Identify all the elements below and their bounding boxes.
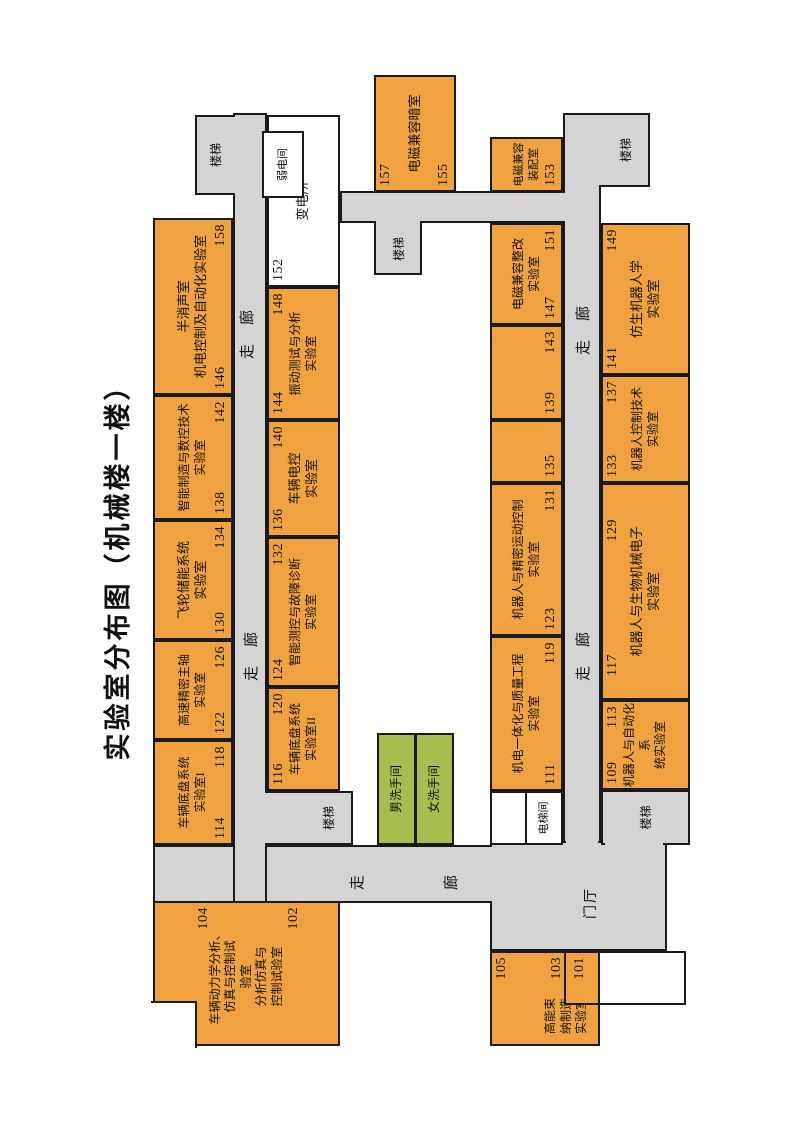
mens-toilet: 男洗手间 bbox=[377, 733, 416, 845]
room-135: 135 bbox=[490, 420, 563, 483]
stairs-northeast: 楼梯 bbox=[195, 115, 235, 195]
room-number: 103 bbox=[549, 957, 565, 980]
room-number: 143 bbox=[543, 331, 559, 354]
room-number: 140 bbox=[271, 426, 287, 449]
elevator-room: 电梯间 bbox=[525, 791, 563, 845]
room-number: 152 bbox=[271, 259, 287, 282]
room-number: 131 bbox=[543, 489, 559, 512]
room-number: 142 bbox=[213, 401, 229, 424]
room-emc-anechoic: 电磁兼容暗室 157 155 bbox=[374, 75, 456, 192]
bottom-corridor bbox=[563, 113, 601, 845]
stairs-south-lobby: 楼梯 bbox=[601, 790, 690, 845]
corridor-junction bbox=[376, 219, 420, 227]
room-number: 132 bbox=[271, 543, 287, 566]
stairs-junction-northwest: 楼梯 bbox=[267, 791, 353, 845]
room-number: 117 bbox=[605, 654, 621, 676]
room-number: 113 bbox=[605, 706, 621, 728]
room-high-speed-spindle: 高速精密主轴 实验室 122 126 bbox=[153, 640, 233, 740]
room-number: 101 bbox=[572, 957, 588, 980]
womens-toilet: 女洗手间 bbox=[415, 733, 454, 845]
stairs-label: 楼梯 bbox=[320, 806, 337, 830]
stairs-southeast: 楼梯 bbox=[601, 113, 650, 187]
room-number: 105 bbox=[494, 957, 510, 980]
room-number: 111 bbox=[543, 764, 559, 785]
room-number: 147 bbox=[543, 297, 559, 320]
room-number: 148 bbox=[271, 293, 287, 316]
room-number: 141 bbox=[605, 347, 621, 370]
room-number: 144 bbox=[271, 392, 287, 415]
room-number: 122 bbox=[213, 712, 229, 735]
room-number: 135 bbox=[543, 455, 559, 478]
room-number: 102 bbox=[286, 907, 302, 930]
room-number: 149 bbox=[605, 229, 621, 252]
room-vibration-testing: 振动测试与分析 实验室 144 148 bbox=[267, 287, 340, 420]
room-number: 120 bbox=[271, 693, 287, 716]
room-intelligent-testing: 智能测控与故障诊断 实验室 124 132 bbox=[267, 537, 340, 687]
room-robot-biomechatronics: 机器人与生物机械电子 实验室 117 129 bbox=[601, 483, 690, 700]
room-robot-automation-systems: 机器人与自动化系 统实验室 109 113 bbox=[601, 700, 690, 790]
room-number: 151 bbox=[543, 229, 559, 252]
stairs-label: 楼梯 bbox=[637, 806, 654, 830]
page-title: 实验室分布图（机械楼一楼） bbox=[96, 0, 135, 1131]
room-number: 124 bbox=[271, 659, 287, 682]
room-number: 119 bbox=[543, 642, 559, 664]
lobby-label: 门厅 bbox=[580, 887, 600, 919]
room-chassis-lab2: 车辆底盘系统 实验室II 116 120 bbox=[267, 687, 340, 791]
corridor-junction bbox=[560, 193, 570, 221]
top-corridor bbox=[233, 113, 267, 903]
room-number: 158 bbox=[213, 224, 229, 247]
room-number: 130 bbox=[213, 612, 229, 635]
room-flywheel-energy: 飞轮储能系统 实验室 130 134 bbox=[153, 520, 233, 640]
room-number: 133 bbox=[605, 455, 621, 478]
room-vehicle-electronic-control: 车辆电控 实验室 136 140 bbox=[267, 420, 340, 537]
room-intelligent-manufacturing: 智能制造与数控技术 实验室 138 142 bbox=[153, 395, 233, 520]
right-corridor bbox=[340, 191, 565, 223]
room-number: 114 bbox=[213, 817, 229, 839]
corridor-label: 走 廊 bbox=[236, 308, 257, 359]
corridor-junction bbox=[235, 847, 265, 901]
corridor-label: 走 廊 bbox=[572, 304, 593, 355]
exterior-structure bbox=[598, 951, 686, 1005]
corridor-junction bbox=[487, 847, 495, 901]
room-robot-precision-motion: 机器人与精密运动控制 实验室 123 131 bbox=[490, 483, 563, 636]
room-number: 118 bbox=[213, 746, 229, 768]
corridor-junction bbox=[597, 115, 605, 185]
stairs-east-alcove: 楼梯 bbox=[374, 223, 422, 275]
corridor-junction bbox=[231, 117, 237, 193]
room-bionic-robotics: 仿生机器人学 实验室 141 149 bbox=[601, 223, 690, 375]
stairs-label: 楼梯 bbox=[617, 138, 634, 162]
corridor-junction bbox=[263, 793, 271, 843]
room-mechatronics-quality: 机电一体化与质量工程 实验室 111 119 bbox=[490, 636, 563, 791]
room-number: 138 bbox=[213, 492, 229, 515]
room-number: 104 bbox=[196, 907, 212, 930]
room-emc-assembly: 电磁兼容 装配室 153 bbox=[490, 137, 563, 192]
room-semi-anechoic: 半消声室 机电控制及自动化实验室 146 158 bbox=[153, 218, 233, 395]
room-robot-control-tech: 机器人控制技术 实验室 133 137 bbox=[601, 375, 690, 483]
room-number: 153 bbox=[543, 164, 559, 187]
room-139-143: 139 143 bbox=[490, 325, 563, 420]
corridor-label: 走 廊 bbox=[572, 630, 593, 681]
room-number: 146 bbox=[213, 367, 229, 390]
corridor-label-vertical: 廊 bbox=[440, 873, 461, 890]
room-number: 123 bbox=[543, 608, 559, 631]
room-number: 139 bbox=[543, 392, 559, 415]
room-number: 126 bbox=[213, 646, 229, 669]
room-weak-current: 弱电间 bbox=[262, 131, 304, 198]
corridor-junction bbox=[605, 838, 663, 848]
room-chassis-lab1: 车辆底盘系统 实验室I 114 118 bbox=[153, 740, 233, 845]
floorplan-page: 实验室分布图（机械楼一楼） 楼梯 楼梯 楼梯 楼梯 楼梯 走 廊 走 廊 走 廊… bbox=[0, 0, 800, 1131]
room-emc-rectification: 电磁兼容整改 实验室 147 151 bbox=[490, 223, 563, 325]
corridor-junction bbox=[566, 836, 598, 848]
stairs-label: 楼梯 bbox=[207, 143, 224, 167]
lobby bbox=[490, 841, 667, 951]
room-number: 155 bbox=[436, 164, 452, 187]
room-number: 109 bbox=[605, 762, 621, 785]
room-number: 137 bbox=[605, 381, 621, 404]
room-number: 116 bbox=[271, 763, 287, 785]
room-number: 129 bbox=[605, 519, 621, 542]
room-number: 157 bbox=[378, 164, 394, 187]
room-number: 134 bbox=[213, 526, 229, 549]
room-number: 136 bbox=[271, 509, 287, 532]
floorplan-rotated-stage: 实验室分布图（机械楼一楼） 楼梯 楼梯 楼梯 楼梯 楼梯 走 廊 走 廊 走 廊… bbox=[0, 0, 800, 1131]
corridor-label: 走 廊 bbox=[240, 630, 261, 681]
room-101: 101 bbox=[564, 951, 600, 1005]
corridor-label-vertical: 走 bbox=[346, 873, 367, 890]
building-notch bbox=[151, 1001, 197, 1048]
stairs-label: 楼梯 bbox=[390, 237, 407, 261]
